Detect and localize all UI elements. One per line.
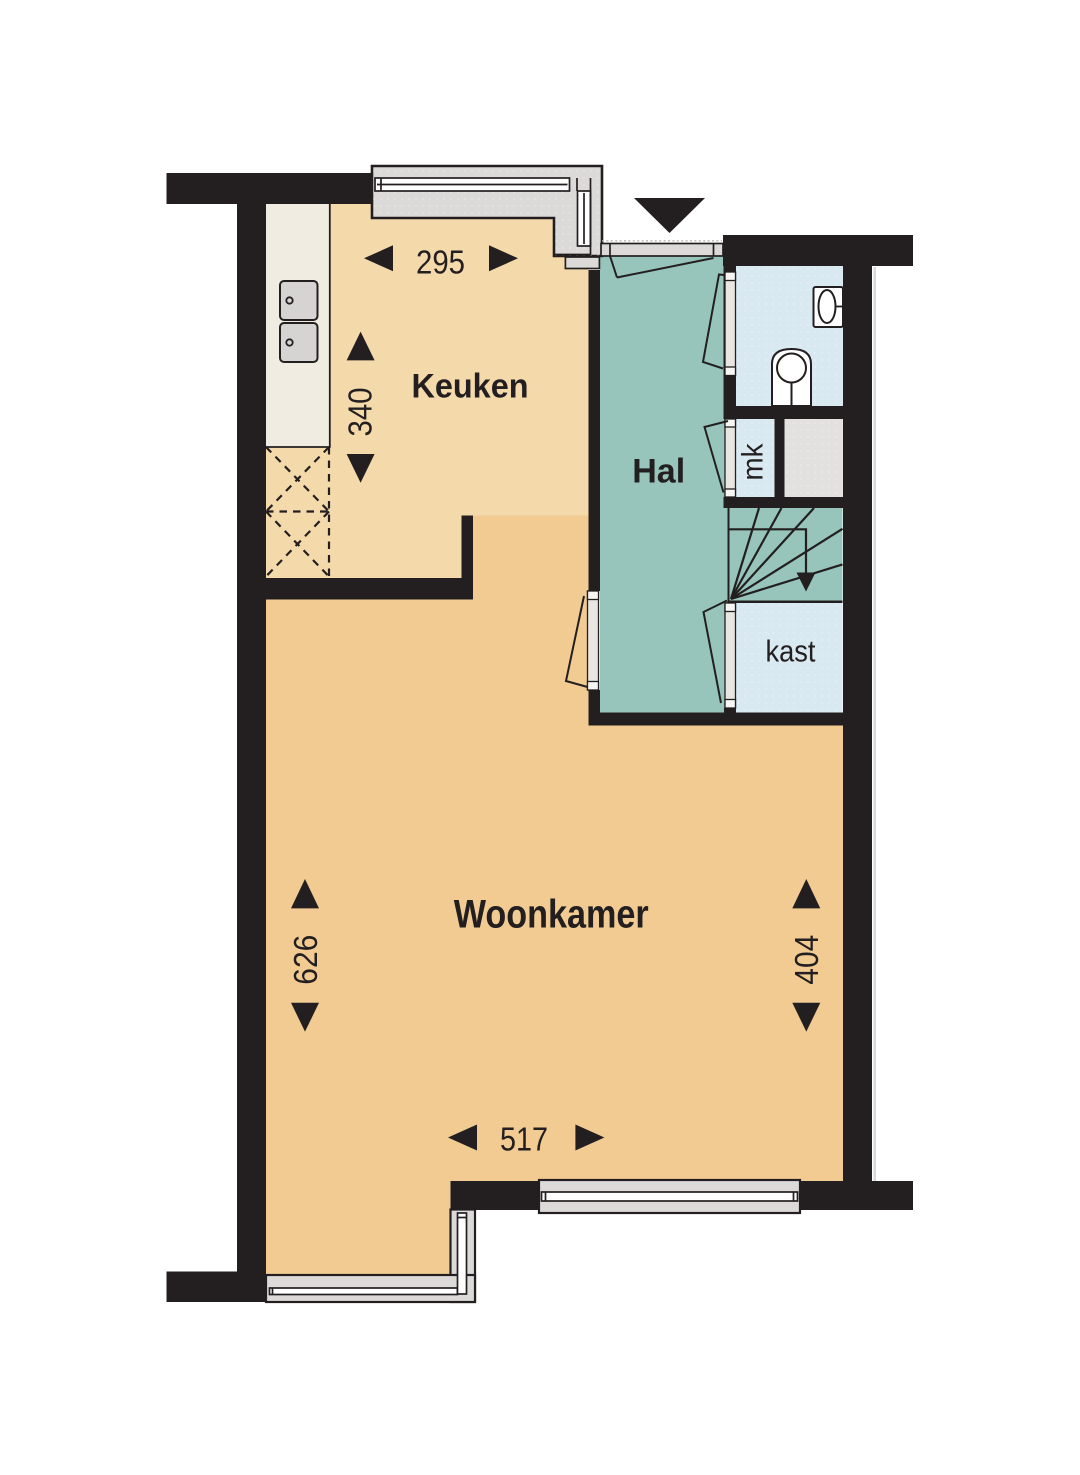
svg-text:626: 626 (287, 935, 324, 985)
svg-text:295: 295 (416, 243, 465, 280)
svg-text:Woonkamer: Woonkamer (454, 893, 649, 937)
svg-text:404: 404 (788, 935, 825, 985)
svg-text:517: 517 (500, 1121, 548, 1158)
svg-text:mk: mk (737, 443, 770, 481)
svg-text:Hal: Hal (632, 453, 685, 491)
svg-text:340: 340 (341, 388, 378, 437)
svg-text:kast: kast (766, 634, 816, 669)
svg-text:Keuken: Keuken (412, 368, 529, 406)
